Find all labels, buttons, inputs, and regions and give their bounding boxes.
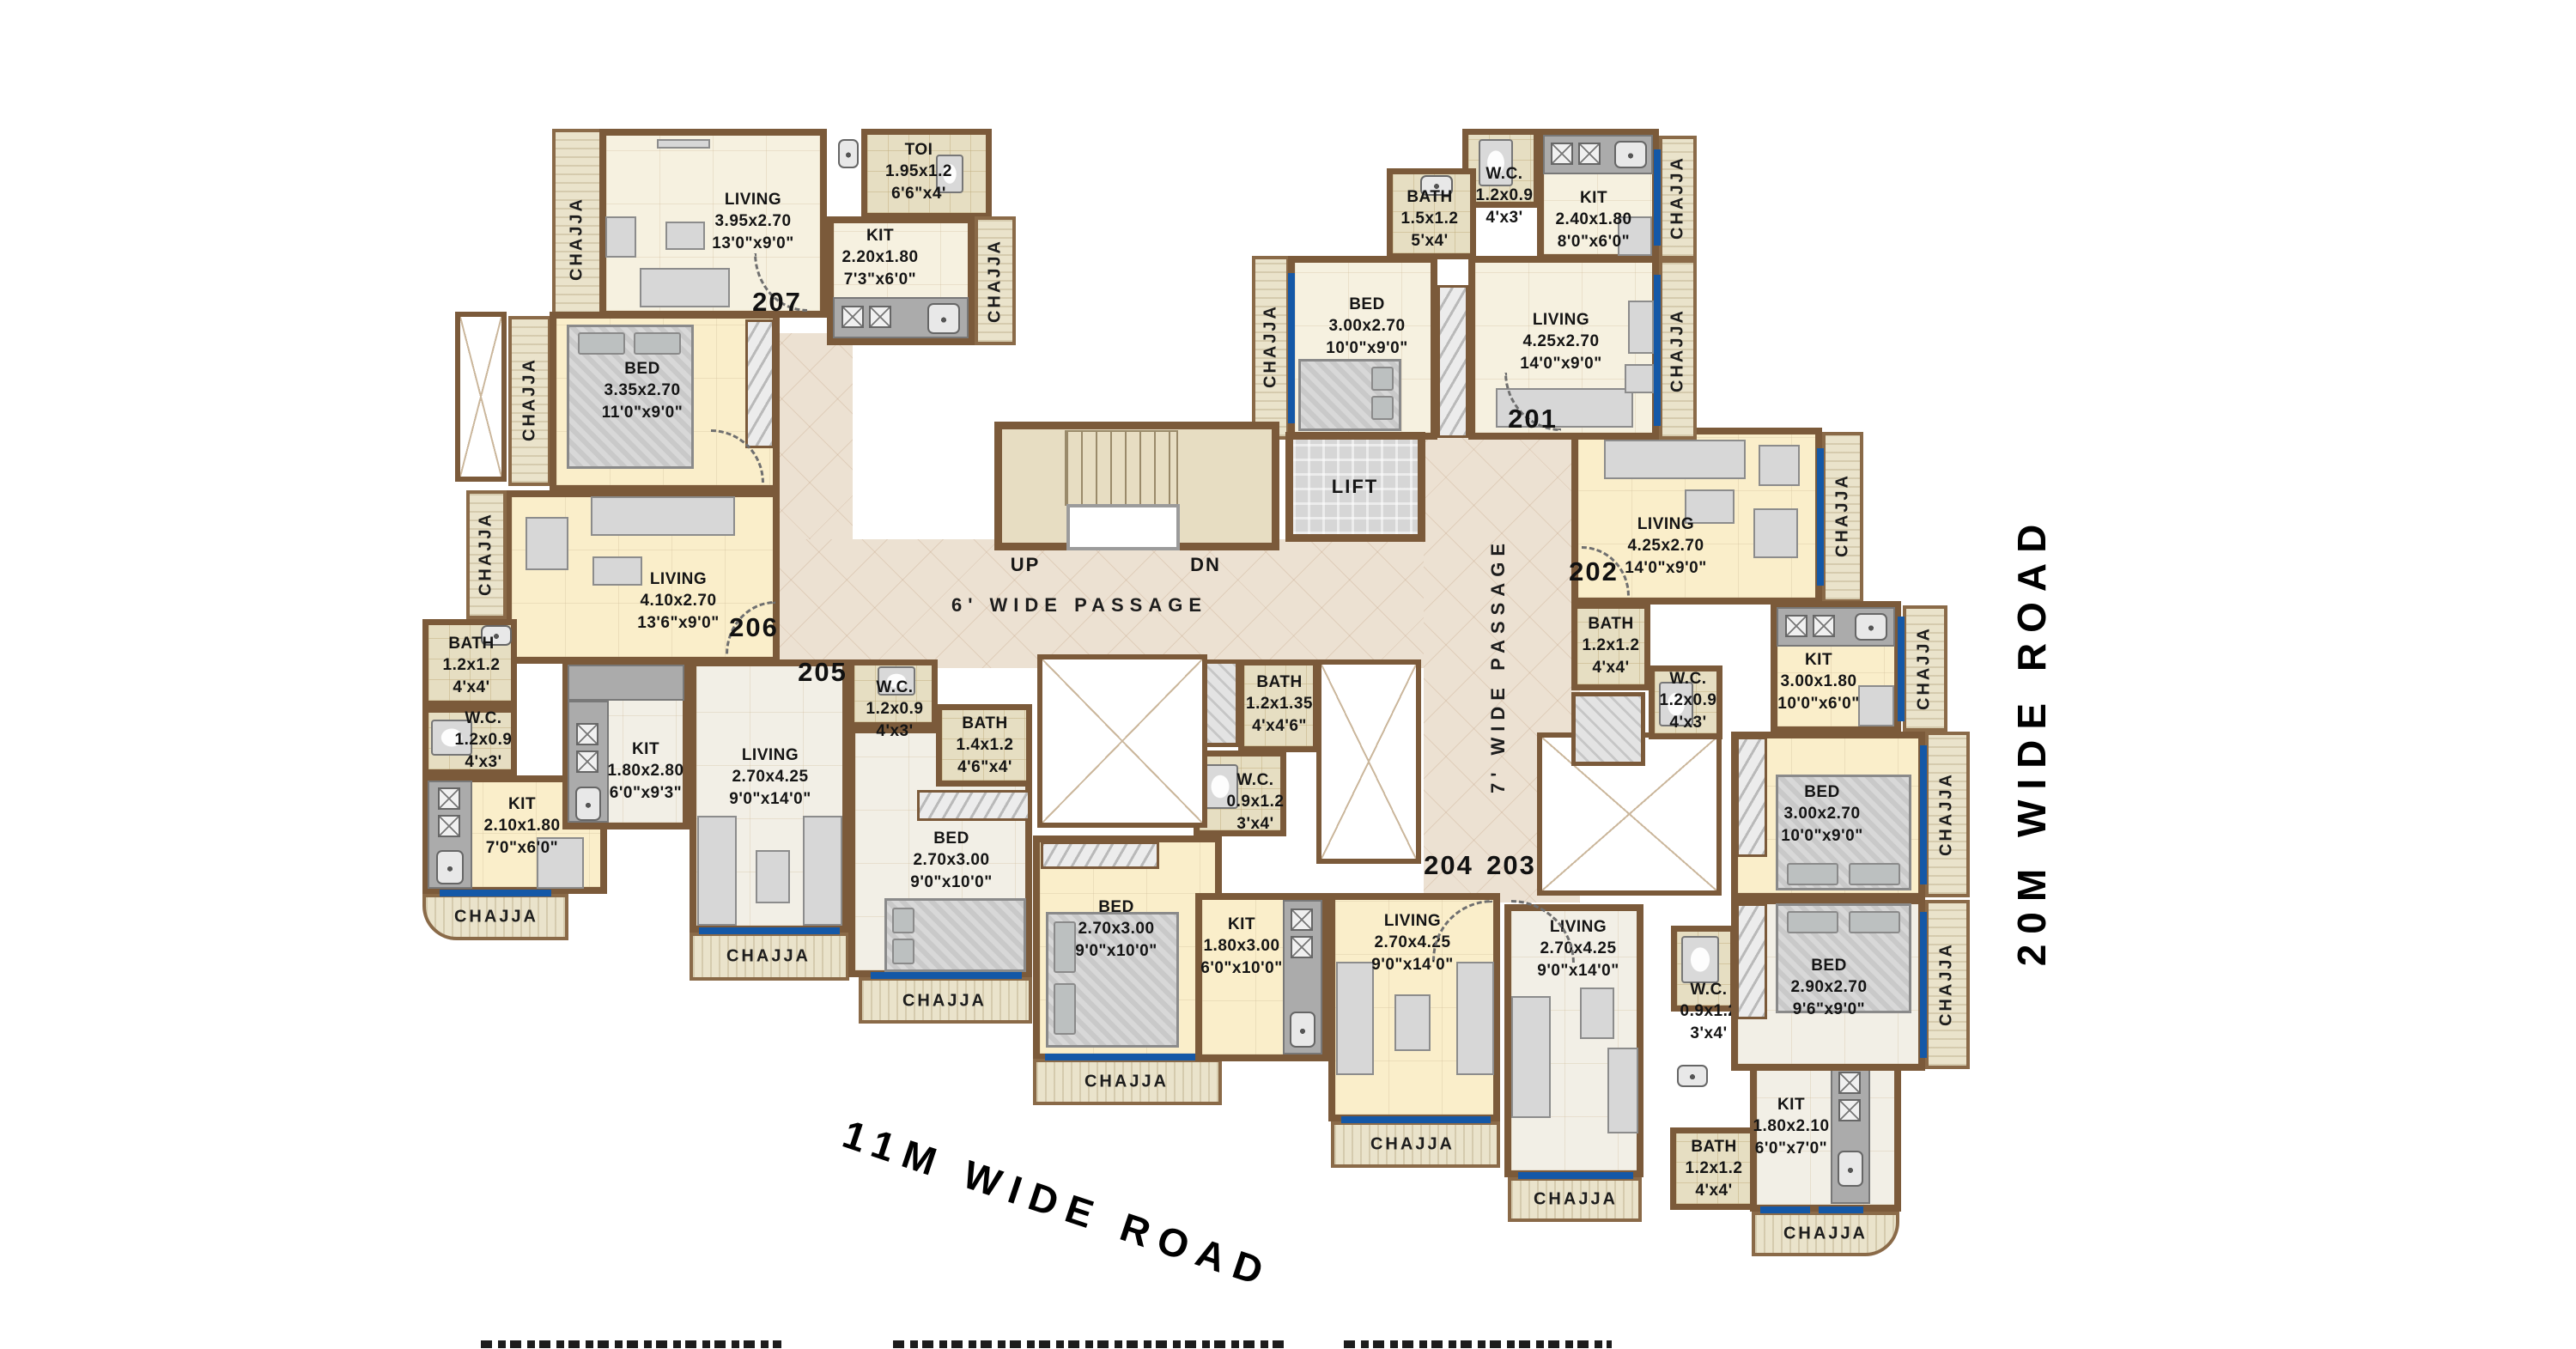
room-label-bed-202: BED3.00x2.7010'0"x9'0" — [1781, 781, 1862, 847]
room-label-wc-206: W.C.1.2x0.94'x3' — [455, 708, 513, 773]
tv-unit-icon — [657, 139, 710, 149]
stove-icon — [1291, 936, 1313, 958]
room-label-living-201: LIVING4.25x2.7014'0"x9'0" — [1520, 309, 1601, 374]
chajja-label: CHAJJA — [454, 908, 538, 927]
sink-icon — [927, 303, 960, 334]
chajja-label: CHAJJA — [1261, 304, 1281, 388]
chajja-label: CHAJJA — [477, 512, 496, 596]
table-icon — [756, 850, 790, 903]
window — [1817, 448, 1824, 586]
duct — [1037, 654, 1207, 828]
chajja-label: CHAJJA — [568, 197, 587, 281]
duct — [1316, 659, 1421, 864]
stove-icon — [576, 750, 598, 773]
room-label-living-205: LIVING2.70x4.259'0"x14'0" — [729, 744, 811, 810]
duct — [455, 312, 507, 482]
room-label-kit-203: KIT1.80x2.106'0"x7'0" — [1753, 1094, 1829, 1159]
chajja-label: CHAJJA — [1370, 1135, 1455, 1155]
stove-icon — [841, 306, 864, 328]
chajja-label: CHAJJA — [1833, 473, 1853, 557]
room-label-bed-204: BED2.70x3.009'0"x10'0" — [1075, 896, 1157, 962]
stove-icon — [576, 723, 598, 745]
room-label-kit-202: KIT3.00x1.8010'0"x6'0" — [1777, 649, 1859, 714]
window — [699, 927, 840, 934]
room-label-kit-205: KIT1.80x2.806'0"x9'3" — [607, 738, 683, 804]
lift-label: LIFT — [1332, 476, 1378, 498]
cropped-footer-text — [1344, 1340, 1612, 1348]
armchair-icon — [605, 216, 636, 258]
room-label-bath-204: BATH1.2x1.354'x4'6" — [1246, 671, 1313, 737]
stove-icon — [1551, 143, 1573, 165]
sink-icon — [1838, 1151, 1863, 1187]
chajja-label: CHAJJA — [1668, 155, 1688, 240]
stove-icon — [1785, 615, 1807, 637]
sink-icon — [1290, 1012, 1315, 1048]
stove-icon — [1813, 615, 1835, 637]
unit-number-205: 205 — [798, 657, 848, 688]
chajja-label: CHAJJA — [1915, 626, 1935, 710]
unit-number-201: 201 — [1508, 404, 1558, 434]
window — [1654, 149, 1661, 246]
sink-icon — [1614, 141, 1647, 168]
window — [1920, 745, 1927, 884]
sofa-icon — [1336, 962, 1374, 1075]
cropped-footer-text — [481, 1340, 781, 1348]
sink-icon — [575, 787, 601, 821]
road-label-right: 20M WIDE ROAD — [2008, 514, 2055, 967]
stair-treads — [1065, 430, 1178, 506]
stair-landing — [1066, 504, 1180, 550]
kitchen-counter — [568, 665, 684, 701]
sofa-icon — [697, 816, 737, 926]
sofa-icon — [1607, 1048, 1638, 1133]
wardrobe-icon — [1041, 842, 1159, 869]
room-label-living-202: LIVING4.25x2.7014'0"x9'0" — [1625, 513, 1706, 579]
chajja-label: CHAJJA — [902, 992, 987, 1012]
toilet-icon — [1681, 936, 1719, 983]
room-label-bath-205: BATH1.4x1.24'6"x4' — [957, 713, 1014, 778]
room-label-bath-203: BATH1.2x1.24'x4' — [1686, 1136, 1743, 1201]
table-icon — [1628, 301, 1654, 354]
room-label-bath-202: BATH1.2x1.24'x4' — [1583, 613, 1640, 678]
armchair-icon — [526, 517, 568, 570]
room-label-kit-204: KIT1.80x3.006'0"x10'0" — [1200, 914, 1282, 979]
armchair-icon — [1759, 445, 1800, 486]
passage-leg — [767, 333, 853, 552]
room-label-bath-201: BATH1.5x1.25'x4' — [1401, 186, 1459, 252]
unit-number-204: 204 — [1424, 850, 1473, 881]
window — [1819, 1206, 1863, 1213]
stove-icon — [1578, 143, 1601, 165]
room-label-wc-201: W.C.1.2x0.94'x3' — [1476, 163, 1534, 228]
sofa-icon — [640, 268, 730, 307]
room-label-bed-203: BED2.90x2.709'6"x9'0" — [1790, 955, 1867, 1020]
chajja-label: CHAJJA — [1937, 942, 1957, 1026]
wardrobe-icon — [917, 790, 1030, 821]
room-label-bath-206: BATH1.2x1.24'x4' — [443, 633, 501, 698]
wardrobe-icon — [1736, 737, 1767, 857]
chajja-label: CHAJJA — [1937, 772, 1957, 856]
chajja-label: CHAJJA — [520, 357, 540, 441]
room-label-wc-202: W.C.1.2x0.94'x3' — [1660, 668, 1717, 733]
room-label-bed-201: BED3.00x2.7010'0"x9'0" — [1326, 294, 1407, 359]
table-icon — [592, 556, 642, 586]
room-label-wc-205: W.C.1.2x0.94'x3' — [866, 677, 924, 742]
room-label-kit-201: KIT2.40x1.808'0"x6'0" — [1555, 187, 1631, 252]
table-icon — [665, 222, 705, 250]
chajja-label: CHAJJA — [1783, 1224, 1868, 1244]
sink-icon — [436, 850, 464, 884]
chajja-label: CHAJJA — [986, 239, 1005, 323]
room-label-wc-204: W.C.0.9x1.23'x4' — [1227, 769, 1285, 835]
fridge-icon — [1858, 685, 1894, 726]
chajja-label: CHAJJA — [1668, 308, 1688, 392]
chajja-label: CHAJJA — [1534, 1190, 1618, 1210]
wardrobe-icon — [1736, 903, 1767, 1019]
cropped-footer-text — [893, 1340, 1290, 1348]
washbasin-icon — [838, 139, 859, 168]
room-label-bed-205: BED2.70x3.009'0"x10'0" — [910, 828, 992, 893]
room-label-living-206: LIVING4.10x2.7013'6"x9'0" — [637, 568, 719, 634]
window — [871, 972, 1022, 979]
bed-icon — [884, 898, 1026, 972]
passage-7ft-label: 7' WIDE PASSAGE — [1487, 538, 1510, 793]
sofa-icon — [591, 496, 735, 536]
wardrobe-icon — [745, 319, 775, 448]
room-label-kit-206: KIT2.10x1.807'0"x6'0" — [483, 793, 560, 859]
window — [440, 890, 551, 896]
table-icon — [1580, 987, 1614, 1039]
stove-icon — [438, 815, 460, 837]
sofa-icon — [803, 816, 842, 926]
floor-plan: 6' WIDE PASSAGE 7' WIDE PASSAGE CHAJJA C… — [0, 0, 2576, 1349]
room-label-living-207: LIVING3.95x2.7013'0"x9'0" — [712, 189, 793, 254]
window — [1518, 1172, 1633, 1179]
sofa-icon — [1604, 440, 1746, 479]
armchair-icon — [1625, 364, 1654, 393]
bed-icon — [1298, 359, 1401, 431]
unit-number-202: 202 — [1569, 556, 1619, 587]
stove-icon — [438, 787, 460, 810]
stove-icon — [1838, 1099, 1861, 1121]
window — [1045, 1054, 1210, 1060]
chajja-label: CHAJJA — [726, 947, 811, 967]
chajja-label: CHAJJA — [1084, 1073, 1169, 1092]
window — [1920, 912, 1927, 1058]
room-label-toi-207: TOI1.95x1.26'6"x4' — [885, 139, 952, 204]
stair-dn-label: DN — [1190, 554, 1221, 576]
window — [1760, 1206, 1810, 1213]
stove-icon — [1838, 1072, 1861, 1094]
sofa-icon — [1511, 996, 1551, 1118]
sink-icon — [1855, 613, 1887, 641]
stove-icon — [869, 306, 891, 328]
wardrobe-icon — [1437, 285, 1468, 438]
shaft-hatch — [1571, 692, 1645, 766]
window — [1288, 273, 1295, 423]
washbasin-icon — [1677, 1065, 1708, 1087]
room-label-bed-206: BED3.35x2.7011'0"x9'0" — [602, 358, 683, 423]
window — [1654, 275, 1661, 426]
sofa-icon — [1456, 962, 1494, 1075]
stove-icon — [1291, 908, 1313, 931]
table-icon — [1394, 994, 1431, 1051]
stair-up-label: UP — [1011, 554, 1041, 576]
road-label-bottom: 11M WIDE ROAD — [837, 1110, 1279, 1297]
room-label-kit-207: KIT2.20x1.807'3"x6'0" — [841, 225, 918, 290]
passage-6ft-label: 6' WIDE PASSAGE — [951, 594, 1207, 617]
window — [1341, 1116, 1491, 1123]
unit-number-206: 206 — [729, 612, 779, 643]
room-label-wc-203: W.C.0.9x1.23'x4' — [1680, 979, 1738, 1044]
unit-number-203: 203 — [1486, 850, 1536, 881]
window — [1898, 617, 1905, 721]
armchair-icon — [1753, 508, 1798, 558]
